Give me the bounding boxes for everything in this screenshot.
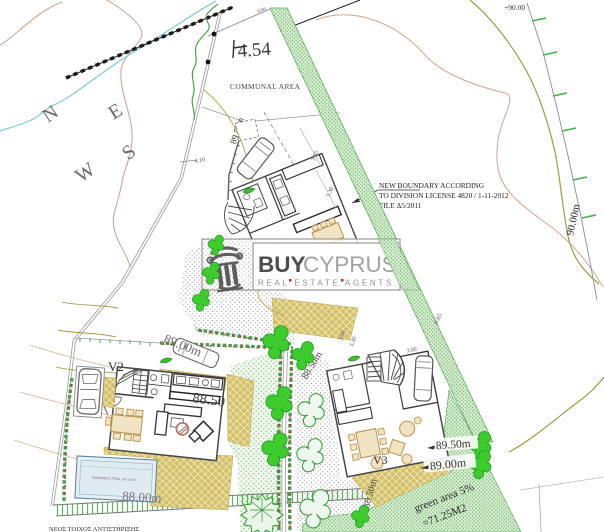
svg-text:4.54: 4.54 — [237, 39, 272, 62]
svg-text:COMMUNAL AREA: COMMUNAL AREA — [230, 82, 301, 91]
svg-text:V3: V3 — [373, 453, 388, 467]
svg-text:CYPRUS: CYPRUS — [303, 252, 397, 277]
svg-text:BUY: BUY — [258, 252, 306, 277]
svg-text:REAL ESTATE AGENTS: REAL ESTATE AGENTS — [258, 279, 394, 288]
svg-text:89.50m: 89.50m — [435, 438, 471, 452]
svg-text:88.00m: 88.00m — [122, 488, 162, 506]
svg-text:+90.00: +90.00 — [504, 3, 525, 12]
svg-text:FILE Δ5/2011: FILE Δ5/2011 — [379, 201, 422, 210]
svg-text:TO DIVISION LICENSE 4820 /: TO DIVISION LICENSE 4820 / 1-11-2012 — [379, 191, 509, 200]
svg-text:V2: V2 — [108, 359, 124, 374]
svg-text:NEW BOUNDARY ACCORDING: NEW BOUNDARY ACCORDING — [379, 181, 485, 190]
svg-text:ΝΕΟΣ ΤΟΙΧΟΣ ΑΝΤΙΣΤΗΡΙΞΗΣ: ΝΕΟΣ ΤΟΙΧΟΣ ΑΝΤΙΣΤΗΡΙΞΗΣ — [49, 526, 139, 532]
